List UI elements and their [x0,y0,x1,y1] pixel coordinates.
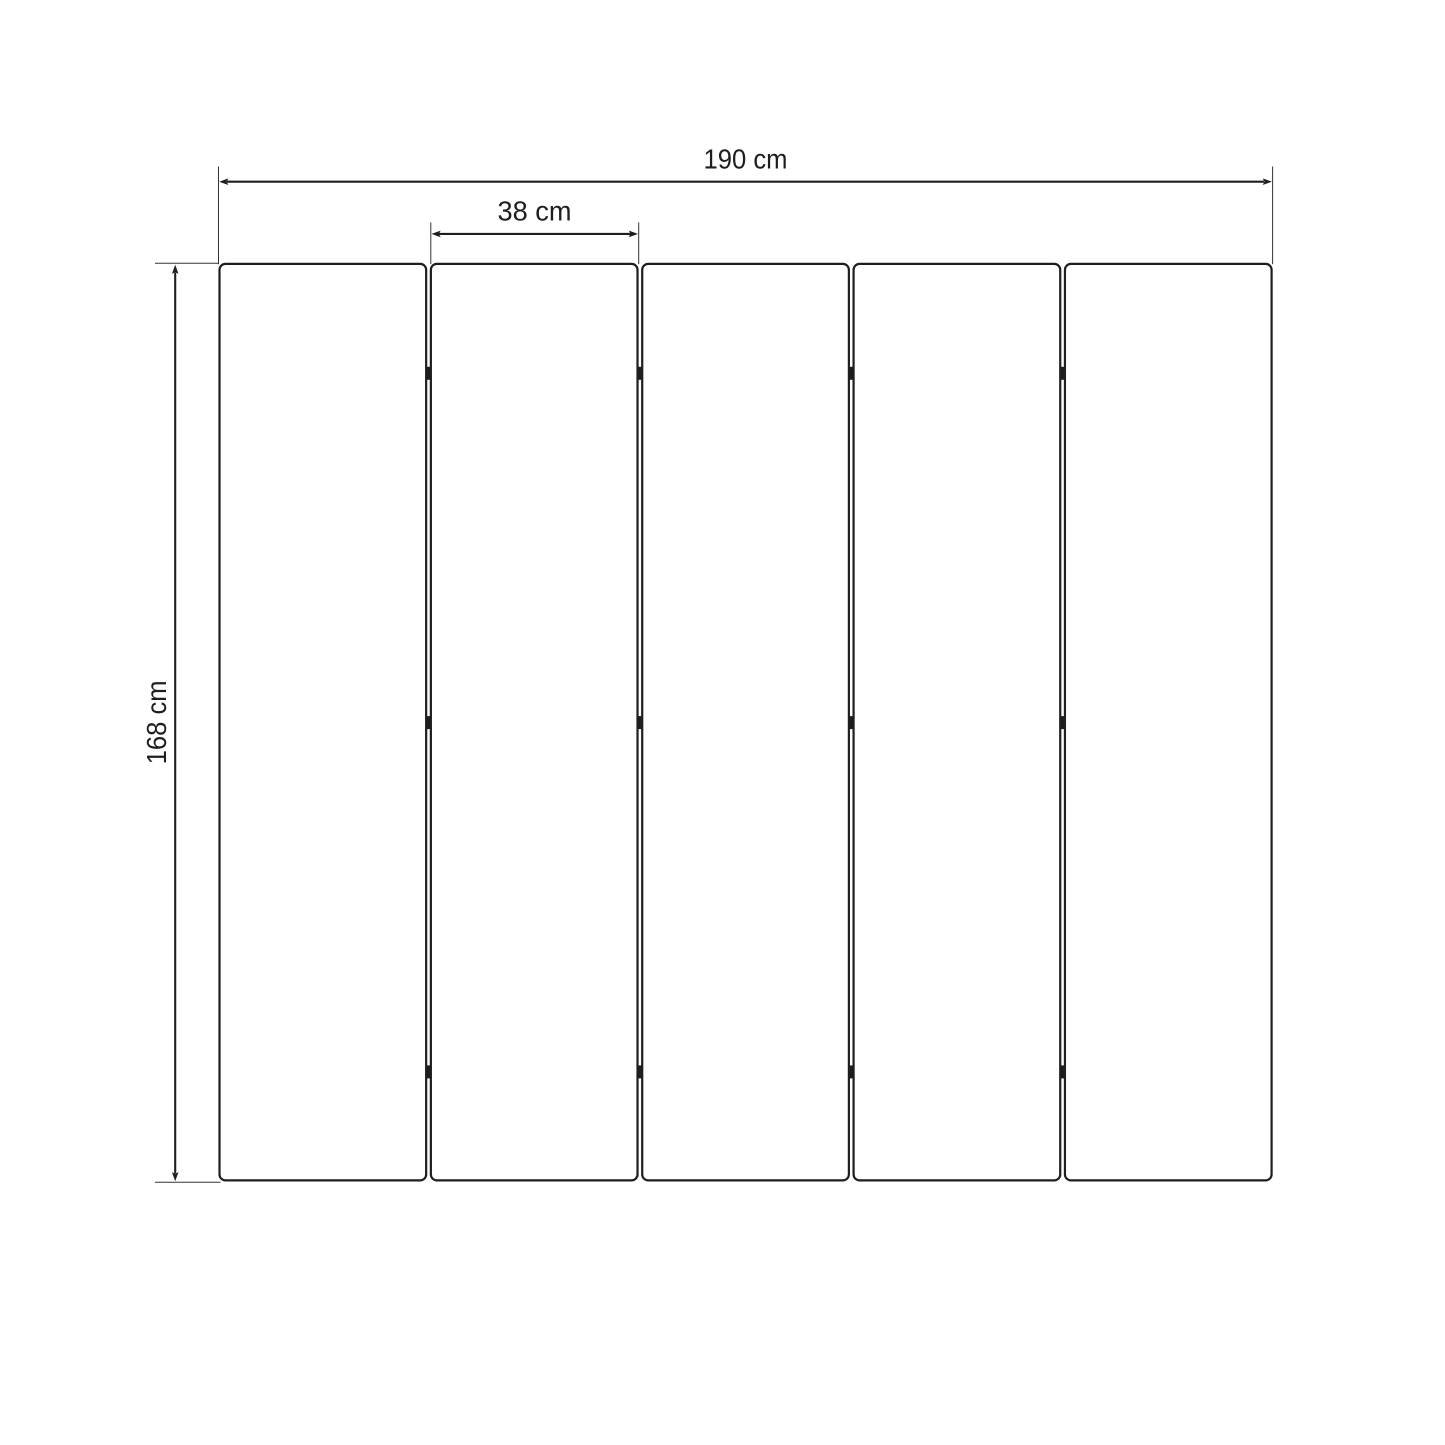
svg-text:190 cm: 190 cm [704,143,788,174]
svg-text:168 cm: 168 cm [141,680,172,764]
svg-text:38 cm: 38 cm [498,196,572,227]
